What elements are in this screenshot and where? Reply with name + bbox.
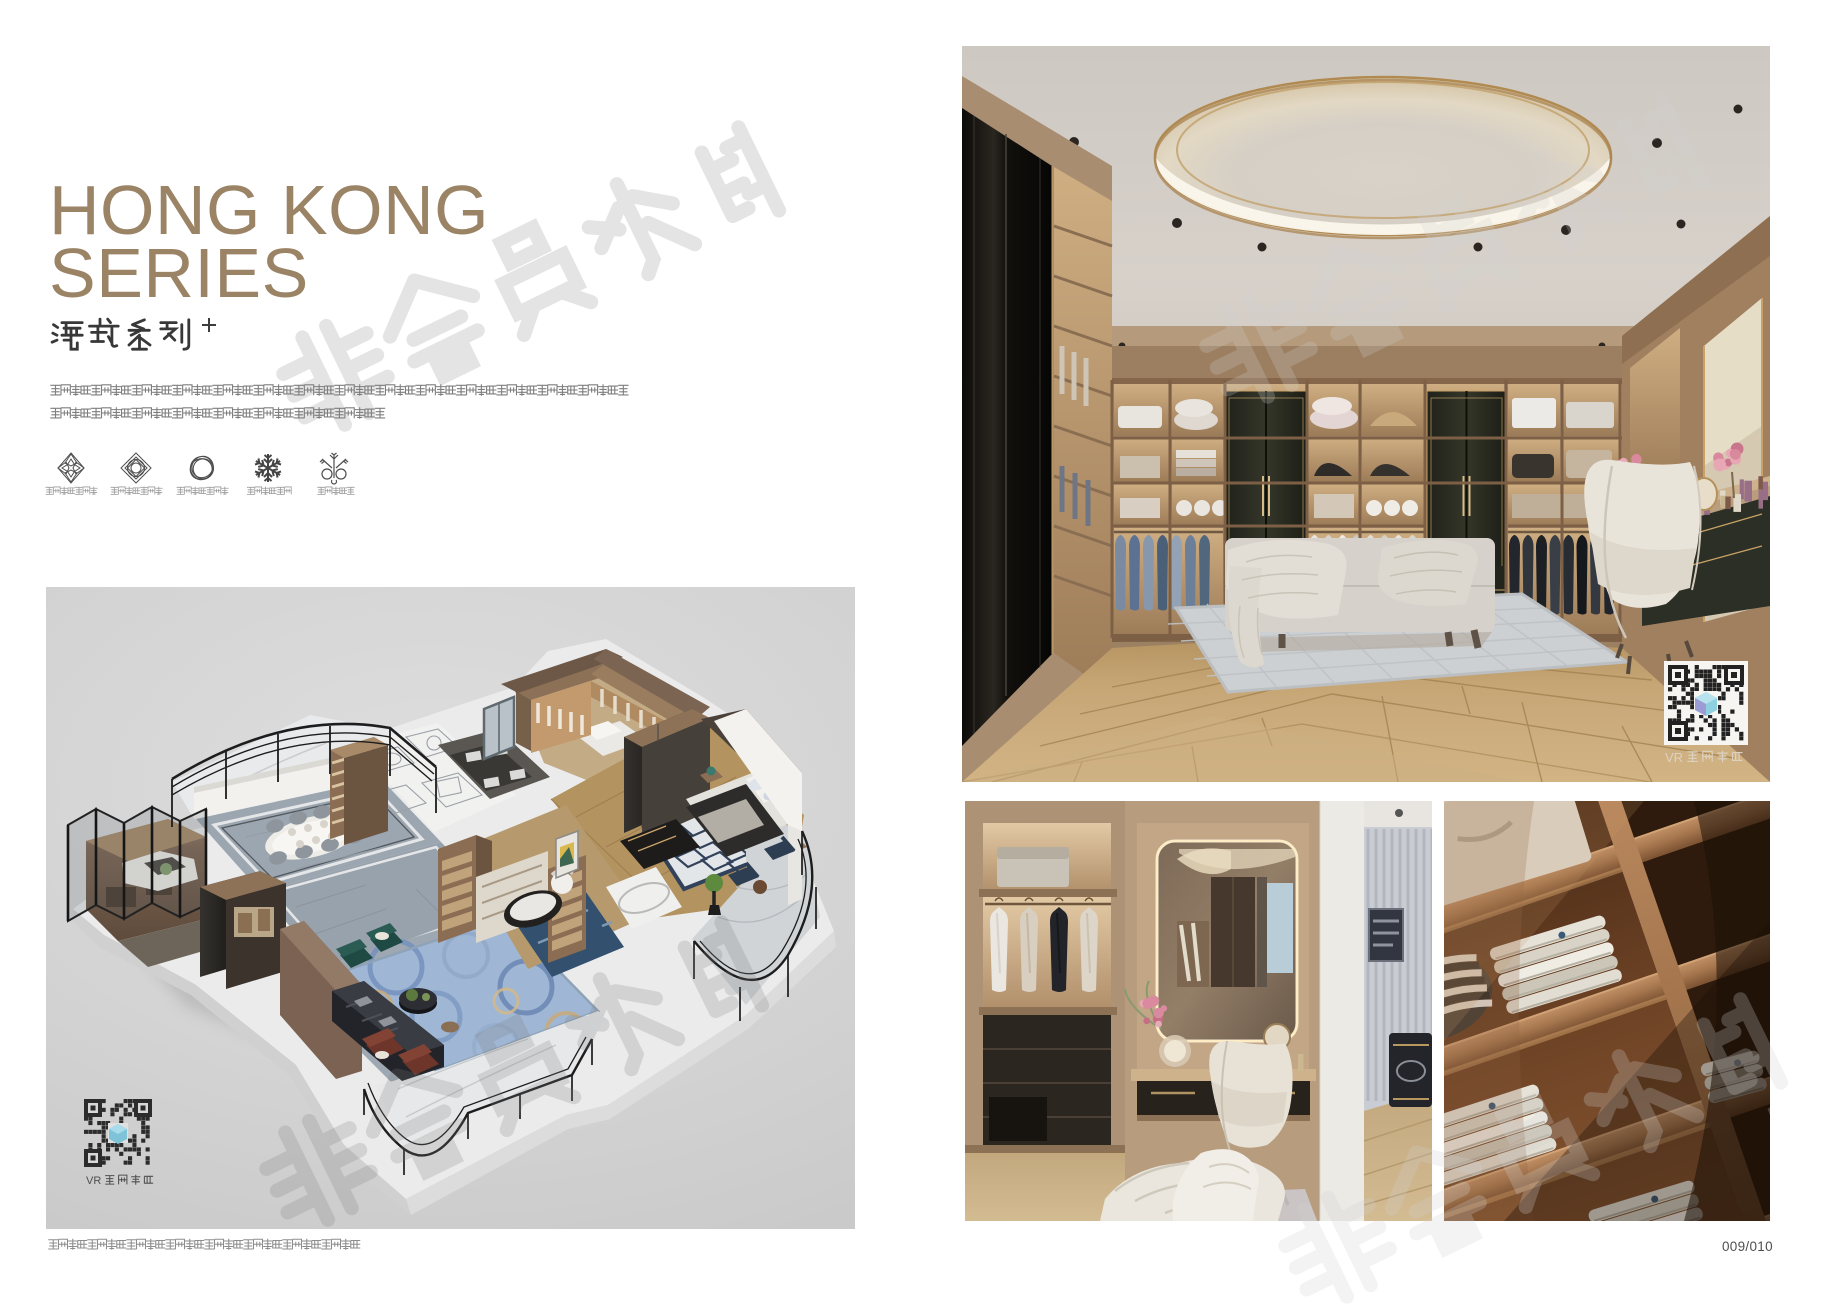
svg-text:VR: VR xyxy=(86,1175,101,1187)
svg-text:VR: VR xyxy=(1665,750,1683,765)
